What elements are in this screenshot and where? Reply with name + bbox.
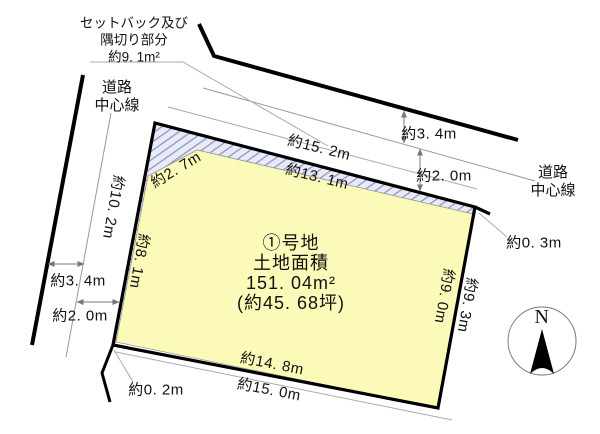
- land-plot-diagram: セットバック及び 隅切り部分 約9. 1m² 道路 中心線 道路 中心線 ①号地…: [0, 0, 600, 434]
- road-centerline-label-left-line1: 道路: [94, 79, 139, 97]
- corner-0-3-leader-line: [479, 213, 507, 237]
- parcel-area-m2: 151. 04m²: [237, 273, 345, 293]
- setback-note-line2: 隅切り部分: [80, 32, 188, 49]
- parcel-area-title: 土地面積: [237, 253, 345, 273]
- road-centerline-label-right: 道路 中心線: [530, 164, 575, 200]
- dim-corner-bottom-left: 約0. 2m: [128, 383, 184, 398]
- parcel-info: ①号地 土地面積 151. 04m² (約45. 68坪): [237, 233, 345, 313]
- parcel-area-tsubo: (約45. 68坪): [237, 293, 345, 313]
- dim-top-center-offset: 約2. 0m: [416, 169, 472, 184]
- parcel-corner-stub: [475, 207, 490, 214]
- compass-north-label: N: [535, 307, 550, 327]
- parcel-number: ①号地: [237, 233, 345, 253]
- dim-left-center-offset: 約2. 0m: [52, 309, 108, 324]
- road-centerline-label-right-line1: 道路: [530, 164, 575, 182]
- road-centerline-label-left-line2: 中心線: [94, 97, 139, 115]
- setback-note-line1: セットバック及び: [80, 15, 188, 32]
- road-centerline-label-left: 道路 中心線: [94, 79, 139, 115]
- road-edge-bottom-left: [102, 345, 113, 402]
- road-centerline-label-right-line2: 中心線: [530, 182, 575, 200]
- road-edge-top: [199, 24, 518, 140]
- dim-left-road-offset: 約3. 4m: [50, 274, 106, 289]
- setback-note: セットバック及び 隅切り部分 約9. 1m²: [80, 15, 188, 66]
- dim-top-road-offset: 約3. 4m: [401, 127, 457, 142]
- dim-corner-top-right: 約0. 3m: [506, 236, 562, 251]
- setback-note-area: 約9. 1m²: [80, 49, 188, 66]
- compass-needle-icon: [530, 329, 554, 374]
